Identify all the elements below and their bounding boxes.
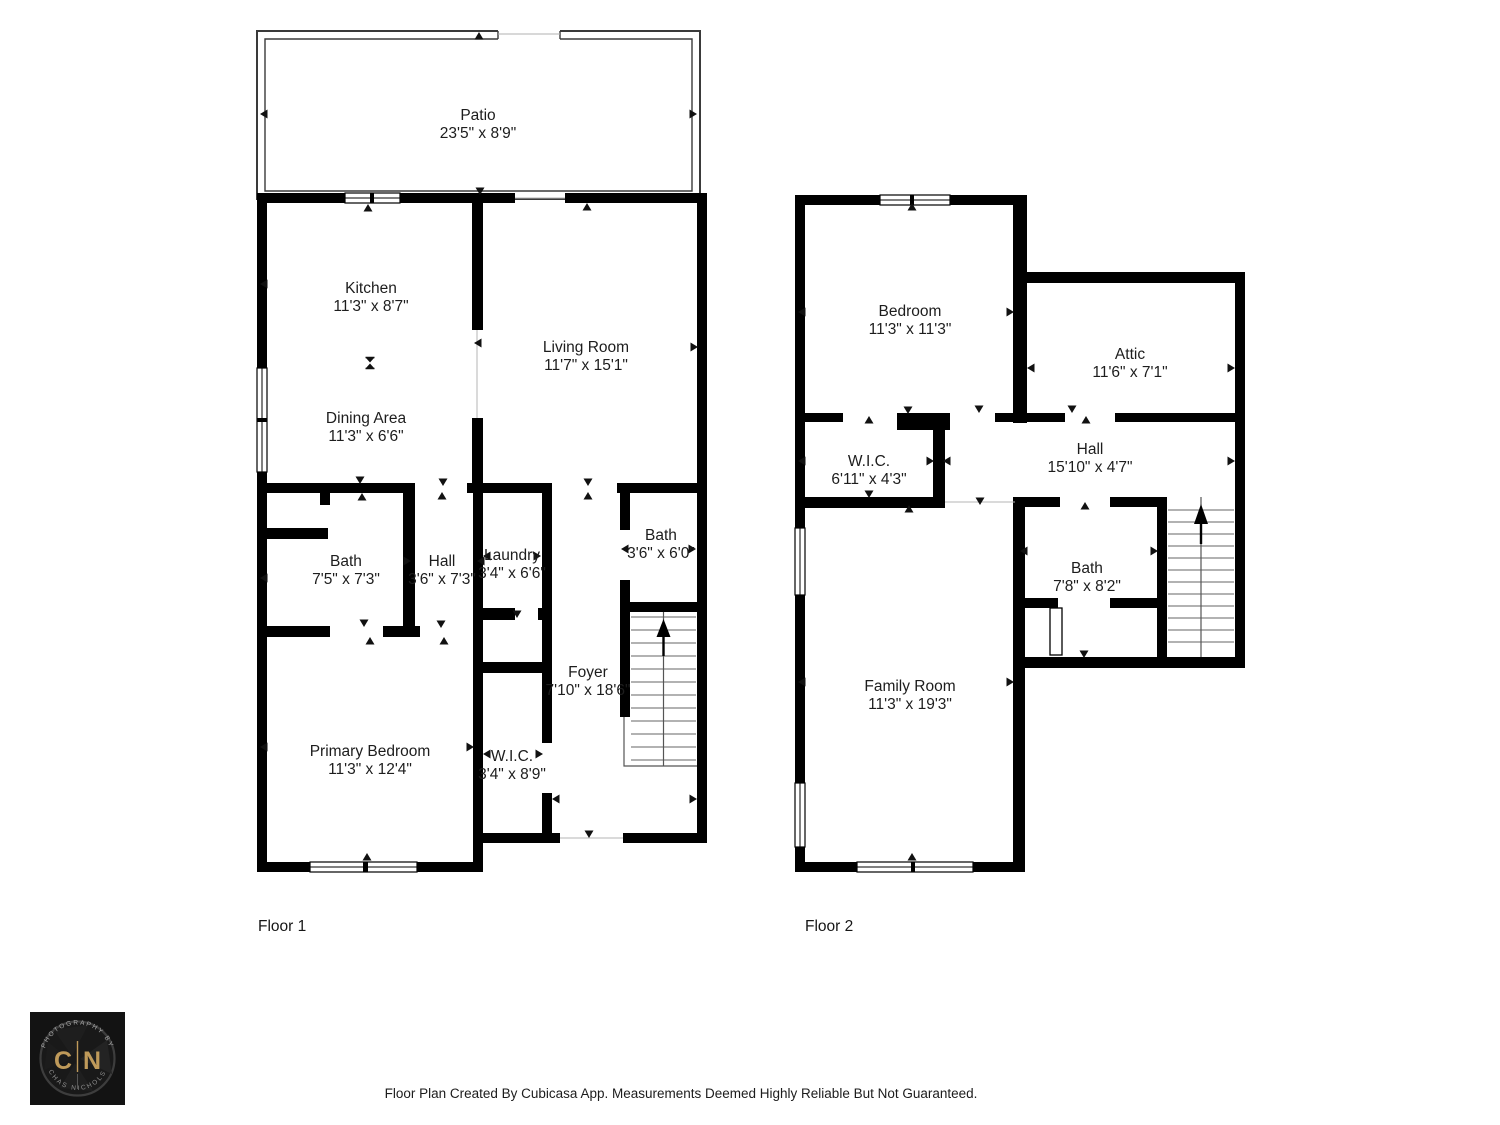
room-name: Bath — [312, 553, 380, 571]
room-label-primary-bedroom: Primary Bedroom 11'3" x 12'4" — [310, 743, 431, 779]
room-label-wic-1: W.I.C. 3'4" x 8'9" — [478, 748, 546, 784]
room-name: Hall — [408, 553, 476, 571]
room-name: Laundry — [478, 547, 546, 565]
room-name: Foyer — [545, 664, 630, 682]
room-dims: 23'5" x 8'9" — [440, 125, 516, 143]
room-dims: 3'4" x 6'6" — [478, 565, 546, 583]
room-dims: 6'11" x 4'3" — [831, 471, 906, 489]
room-name: W.I.C. — [478, 748, 546, 766]
room-label-bedroom: Bedroom 11'3" x 11'3" — [869, 303, 952, 339]
room-label-attic: Attic 11'6" x 7'1" — [1092, 346, 1167, 382]
floor2-staircase — [1168, 497, 1234, 657]
room-name: Hall — [1047, 441, 1132, 459]
room-dims: 15'10" x 4'7" — [1047, 459, 1132, 477]
door-thresholds — [477, 198, 1015, 838]
room-name: Primary Bedroom — [310, 743, 431, 761]
room-dims: 11'3" x 11'3" — [869, 321, 952, 339]
logo-initial-n: N — [83, 1047, 101, 1075]
photographer-logo: PHOTOGRAPHY BY CHAS NICHOLS C N — [30, 1012, 125, 1105]
room-name: Kitchen — [333, 280, 408, 298]
room-label-dining-area: Dining Area 11'3" x 6'6" — [326, 410, 406, 446]
floor-plan-page: { "floors": [ { "label": "Floor 1", "roo… — [0, 0, 1500, 1125]
floor-plan-drawing — [0, 0, 1500, 1125]
room-dims: 7'8" x 8'2" — [1053, 578, 1121, 596]
room-label-bath-3: Bath 7'8" x 8'2" — [1053, 560, 1121, 596]
room-label-hall-1: Hall 3'6" x 7'3" — [408, 553, 476, 589]
stairs-up-arrow-icon — [657, 619, 671, 637]
floor2-caption: Floor 2 — [805, 918, 853, 936]
room-dims: 11'7" x 15'1" — [543, 357, 629, 375]
room-label-hall-2: Hall 15'10" x 4'7" — [1047, 441, 1132, 477]
room-label-bath-1: Bath 7'5" x 7'3" — [312, 553, 380, 589]
room-name: Bath — [1053, 560, 1121, 578]
floor1-staircase — [624, 612, 697, 766]
room-name: Family Room — [864, 678, 955, 696]
room-dims: 11'3" x 6'6" — [326, 428, 406, 446]
logo-initial-c: C — [54, 1047, 72, 1075]
room-name: Bath — [627, 527, 695, 545]
room-dims: 3'6" x 6'0" — [627, 545, 695, 563]
room-dims: 11'6" x 7'1" — [1092, 364, 1167, 382]
room-label-foyer: Foyer 7'10" x 18'6" — [545, 664, 630, 700]
room-dims: 7'10" x 18'6" — [545, 682, 630, 700]
room-dims: 11'3" x 12'4" — [310, 761, 431, 779]
room-name: Bedroom — [869, 303, 952, 321]
floor1-caption: Floor 1 — [258, 918, 306, 936]
fixture-icon — [366, 358, 375, 369]
room-name: Attic — [1092, 346, 1167, 364]
footer-disclaimer: Floor Plan Created By Cubicasa App. Meas… — [385, 1086, 978, 1101]
room-label-wic-2: W.I.C. 6'11" x 4'3" — [831, 453, 906, 489]
room-name: Patio — [440, 107, 516, 125]
room-label-kitchen: Kitchen 11'3" x 8'7" — [333, 280, 408, 316]
room-label-living-room: Living Room 11'7" x 15'1" — [543, 339, 629, 375]
room-name: W.I.C. — [831, 453, 906, 471]
room-dims: 3'6" x 7'3" — [408, 571, 476, 589]
door-leaf-icon — [1050, 608, 1062, 655]
room-label-patio: Patio 23'5" x 8'9" — [440, 107, 516, 143]
room-label-family-room: Family Room 11'3" x 19'3" — [864, 678, 955, 714]
stairs-up-arrow-icon — [1194, 504, 1208, 524]
room-name: Living Room — [543, 339, 629, 357]
room-dims: 7'5" x 7'3" — [312, 571, 380, 589]
room-dims: 3'4" x 8'9" — [478, 766, 546, 784]
room-label-bath-2: Bath 3'6" x 6'0" — [627, 527, 695, 563]
room-label-laundry: Laundry 3'4" x 6'6" — [478, 547, 546, 583]
room-name: Dining Area — [326, 410, 406, 428]
room-dims: 11'3" x 8'7" — [333, 298, 408, 316]
room-dims: 11'3" x 19'3" — [864, 696, 955, 714]
